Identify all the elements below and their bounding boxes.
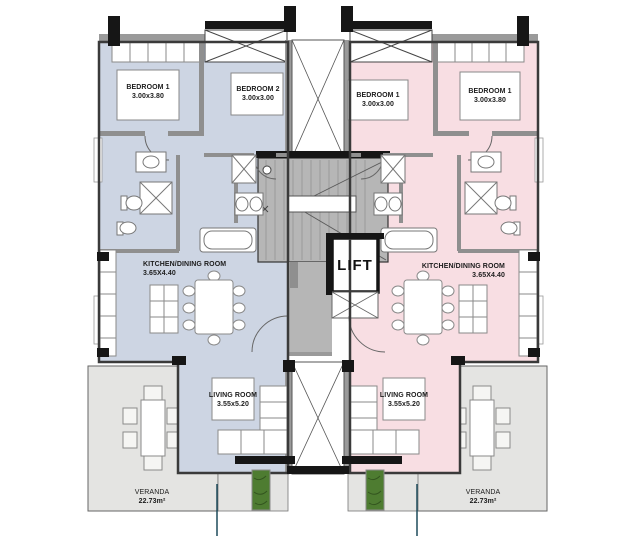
- label-right-veranda: VERANDA 22.73m²: [466, 489, 501, 507]
- label-right-kitchen: KITCHEN/DINING ROOM 3.65X4.40: [422, 263, 505, 281]
- stair-newel: [263, 166, 271, 174]
- planter-right: [366, 470, 384, 510]
- lift-room: [332, 238, 378, 318]
- shaft-top: [285, 40, 351, 158]
- label-left-living: LIVING ROOM 3.55x5.20: [209, 392, 257, 410]
- balcony-void-right: [350, 30, 432, 62]
- core-lobby: [288, 262, 332, 356]
- label-left-kitchen: KITCHEN/DINING ROOM 3.65X4.40: [143, 261, 226, 279]
- planter-left: [252, 470, 270, 510]
- floor-plan-drawing: [0, 0, 627, 536]
- living-left: [212, 378, 287, 454]
- living-right: [350, 378, 425, 454]
- wardrobe-left: [112, 42, 200, 62]
- label-right-living: LIVING ROOM 3.55x5.20: [380, 392, 428, 410]
- label-left-bedroom2: BEDROOM 2 3.00x3.00: [236, 86, 279, 104]
- label-right-bedroom1: BEDROOM 1 3.00x3.00: [356, 92, 399, 110]
- label-left-veranda: VERANDA 22.73m²: [135, 489, 170, 507]
- wardrobe-right: [437, 42, 524, 62]
- balcony-void-left: [205, 30, 287, 62]
- label-right-bedroom2: BEDROOM 1 3.00x3.80: [468, 88, 511, 106]
- label-lift: LIFT: [337, 258, 373, 273]
- stair-flight: [288, 196, 356, 212]
- floor-plan: BEDROOM 1 3.00x3.80 BEDROOM 2 3.00x3.00 …: [0, 0, 627, 536]
- label-left-bedroom1: BEDROOM 1 3.00x3.80: [126, 84, 169, 102]
